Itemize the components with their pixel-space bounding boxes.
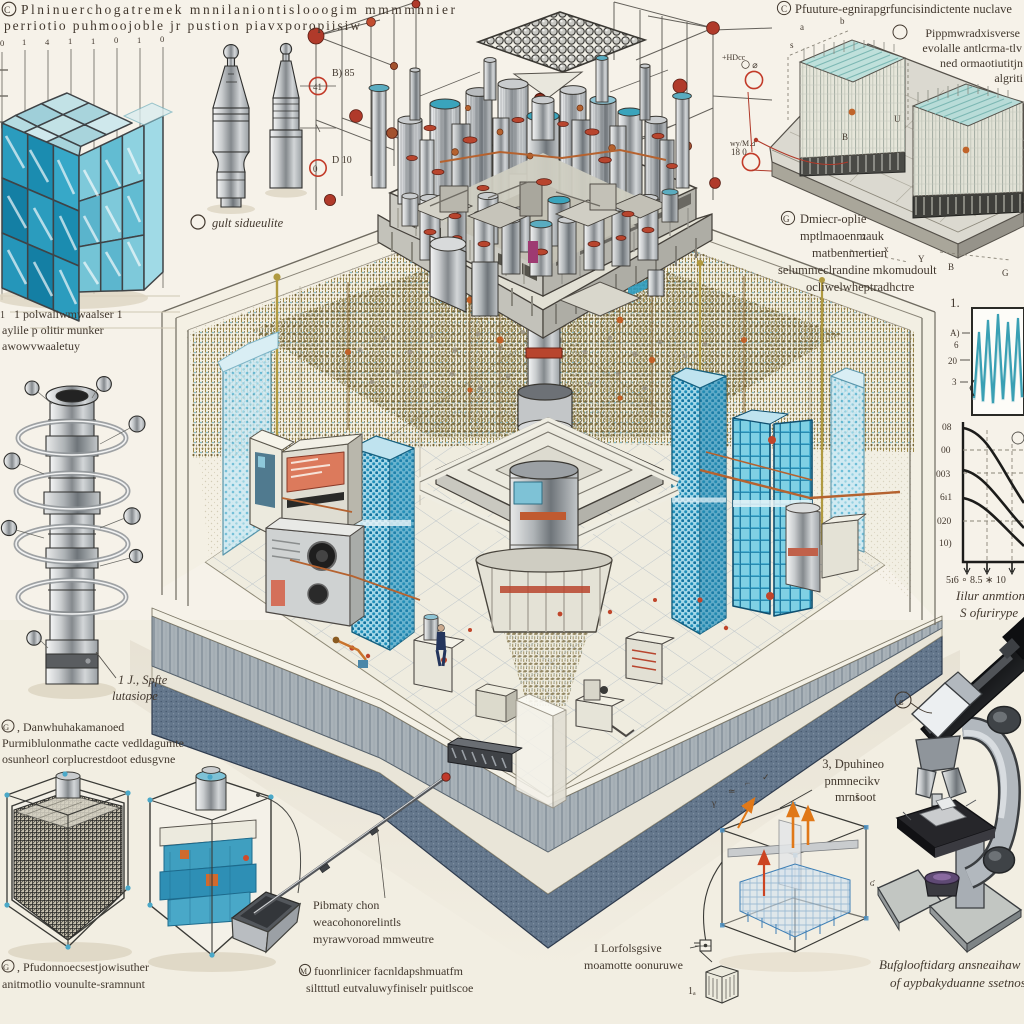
svg-text:algriti: algriti [994,71,1023,85]
svg-text:evolalle antlcrma-tlv: evolalle antlcrma-tlv [922,41,1022,55]
svg-text:ocliwelwheptradhctre: ocliwelwheptradhctre [806,280,915,294]
svg-text:γ: γ [711,798,716,808]
svg-text:1 J., Spfte: 1 J., Spfte [118,673,168,687]
svg-text:+HDcc: +HDcc [722,53,746,62]
svg-text:⌐: ⌐ [745,778,750,788]
svg-text:weacohonorelintls: weacohonorelintls [313,915,401,929]
svg-text:G: G [3,962,9,972]
svg-text:6: 6 [954,340,959,350]
svg-text:U: U [894,114,901,124]
svg-text:C: C [4,6,10,16]
svg-text:41: 41 [313,82,322,92]
svg-text:08: 08 [942,423,952,433]
svg-text:moamotte oonuruwe: moamotte oonuruwe [584,958,683,972]
svg-text:S ofurirype: S ofurirype [960,605,1018,620]
svg-text:myrawvoroad mmweutre: myrawvoroad mmweutre [313,932,434,946]
svg-text:b: b [840,16,845,26]
svg-text:020: 020 [937,517,952,527]
svg-text:Purmiblulonmathe cacte vedldag: Purmiblulonmathe cacte vedldagumte [2,736,184,750]
svg-text:3, Dpuhineo: 3, Dpuhineo [822,757,884,771]
svg-text:1.: 1. [950,295,960,310]
svg-text:3: 3 [952,377,957,387]
svg-text:✓: ✓ [762,772,770,782]
svg-text:00: 00 [941,446,951,456]
svg-text:1: 1 [68,36,72,46]
svg-text:0: 0 [114,35,118,45]
svg-text:1: 1 [0,310,5,321]
svg-text:B: B [842,132,848,142]
svg-text:5ı6 ∘ 8.5 ∗ 10: 5ı6 ∘ 8.5 ∗ 10 [946,575,1006,586]
svg-text:Pippmwradxisverse: Pippmwradxisverse [925,26,1020,40]
svg-text:osunheorl corplucrestdoot edus: osunheorl corplucrestdoot edusgvne [2,752,175,766]
svg-text:siltttutl eutvaluwyfiniselr pu: siltttutl eutvaluwyfiniselr puitlscoe [306,981,473,995]
svg-text:0: 0 [313,164,318,174]
svg-text:a: a [800,22,804,32]
svg-text:1: 1 [91,36,95,46]
svg-text:s: s [790,40,794,50]
svg-text:ned ormaotiutitjn: ned ormaotiutitjn [940,56,1023,70]
svg-text:D 10: D 10 [332,155,352,166]
svg-text:anitmotlio vounulte-sramnunt: anitmotlio vounulte-sramnunt [2,977,146,991]
svg-text:A): A) [950,328,960,338]
svg-text:Pibmaty chon: Pibmaty chon [313,898,379,912]
svg-text:0: 0 [0,38,4,48]
svg-text:mrnsoot: mrnsoot [835,790,877,804]
svg-text:G: G [1002,268,1009,278]
svg-text:Plninuerchogatremek mnnilanion: Plninuerchogatremek mnnilaniontislooogim… [21,2,456,17]
svg-text:lutasiope: lutasiope [112,689,158,703]
svg-text:, Danwhuhakamanoed: , Danwhuhakamanoed [17,720,124,734]
svg-text:003: 003 [936,470,951,480]
svg-text:Pfuuture-egnirapgrfuncisindict: Pfuuture-egnirapgrfuncisindictente nucla… [795,2,1012,16]
svg-text:, Pfudonnoecsestjowisuther: , Pfudonnoecsestjowisuther [17,960,149,974]
svg-text:Dmiecr-oplie: Dmiecr-oplie [800,212,867,226]
svg-text:C: C [781,4,787,14]
svg-text:aylile p olitir munker: aylile p olitir munker [2,323,104,337]
svg-text:G: G [783,214,790,224]
svg-text:6ı1: 6ı1 [940,493,952,503]
svg-text:I Lorfolsgsive: I Lorfolsgsive [594,941,662,955]
svg-text:18 0: 18 0 [731,147,747,157]
svg-text:ɕ: ɕ [899,697,904,708]
svg-text:G: G [3,722,9,732]
svg-text:gult sidueulite: gult sidueulite [212,216,284,230]
svg-text:B: B [948,262,954,272]
svg-text:Bufglooftidarg ansneaihaw: Bufglooftidarg ansneaihaw [879,957,1021,972]
svg-text:fuonrlinicer facnldapshmuatfm: fuonrlinicer facnldapshmuatfm [314,964,464,978]
svg-text:awowvwaaletuy: awowvwaaletuy [2,339,80,353]
svg-text:1: 1 [22,37,26,47]
svg-text:1: 1 [137,35,141,45]
svg-text:of aypbakyduanne ssetnos: of aypbakyduanne ssetnos [890,975,1024,990]
svg-text:matbenmertien: matbenmertien [812,246,888,260]
svg-text:M: M [300,967,307,976]
svg-text:10): 10) [939,538,952,549]
svg-text:≃: ≃ [728,786,736,796]
svg-text:0: 0 [160,34,164,44]
svg-text:1ₐ: 1ₐ [688,986,696,997]
svg-text:mptlmaoenmauk: mptlmaoenmauk [800,229,885,243]
svg-text:B) 85: B) 85 [332,68,355,79]
svg-text:Iilur anmtion: Iilur anmtion [955,588,1024,603]
svg-text:selummeclrandine mkomudoult: selummeclrandine mkomudoult [778,263,937,277]
svg-text:1 polwaliwmwaalser 1: 1 polwaliwmwaalser 1 [14,307,123,321]
svg-text:pnmnecikv: pnmnecikv [824,774,880,788]
svg-text:20: 20 [948,356,958,366]
